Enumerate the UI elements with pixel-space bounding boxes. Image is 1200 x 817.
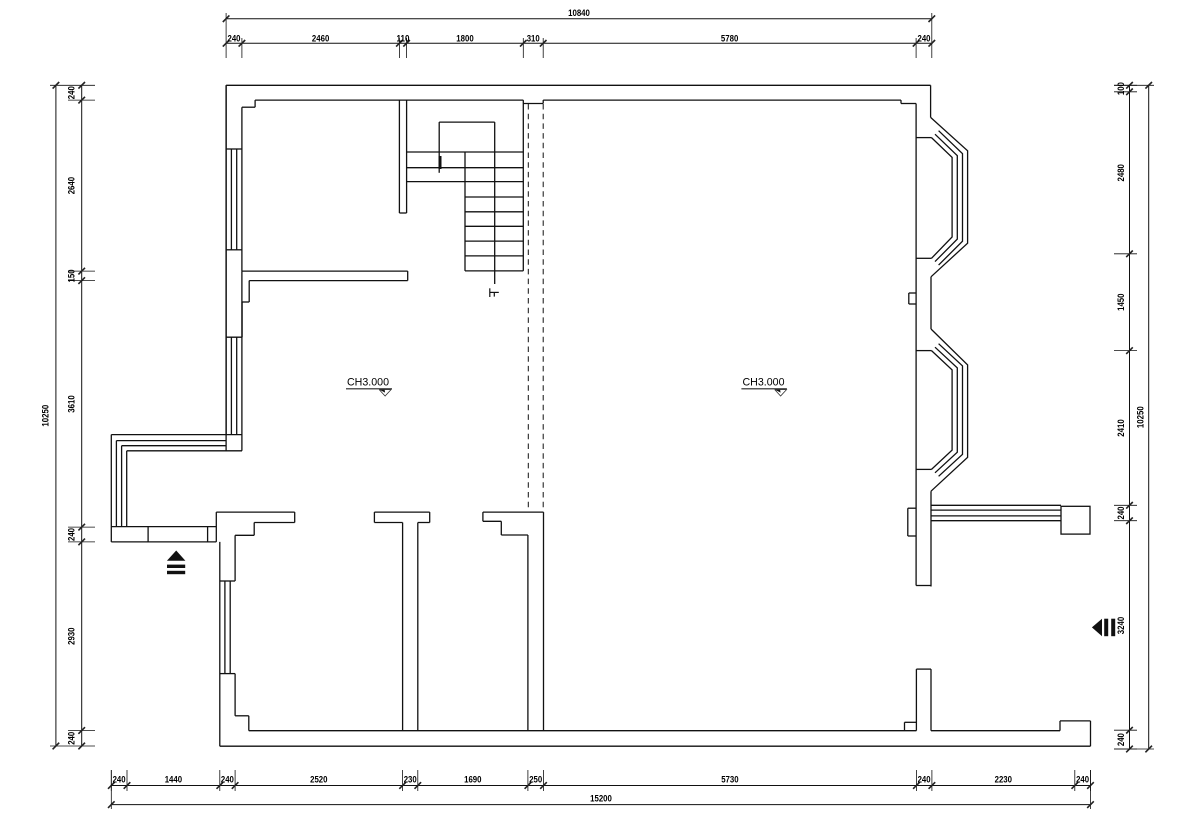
svg-text:240: 240 <box>67 528 78 541</box>
svg-text:CH3.000: CH3.000 <box>347 377 389 389</box>
svg-text:240: 240 <box>1076 774 1089 785</box>
svg-text:2520: 2520 <box>310 774 327 785</box>
svg-text:230: 230 <box>404 774 417 785</box>
svg-text:150: 150 <box>67 269 78 282</box>
svg-text:240: 240 <box>918 34 931 45</box>
svg-text:310: 310 <box>527 34 540 45</box>
svg-text:250: 250 <box>529 774 542 785</box>
svg-text:240: 240 <box>228 34 241 45</box>
svg-text:1440: 1440 <box>165 774 182 785</box>
svg-text:2640: 2640 <box>67 177 78 194</box>
svg-text:10250: 10250 <box>1136 406 1147 428</box>
svg-text:240: 240 <box>918 774 931 785</box>
svg-text:3240: 3240 <box>1116 617 1127 634</box>
svg-text:3610: 3610 <box>67 395 78 412</box>
svg-text:10250: 10250 <box>41 405 52 427</box>
svg-text:2410: 2410 <box>1116 419 1127 436</box>
svg-text:5780: 5780 <box>721 34 738 45</box>
svg-text:2460: 2460 <box>312 34 329 45</box>
svg-text:240: 240 <box>113 774 126 785</box>
svg-text:2930: 2930 <box>67 628 78 645</box>
svg-text:100: 100 <box>1116 82 1127 95</box>
svg-text:5730: 5730 <box>721 774 738 785</box>
svg-text:240: 240 <box>67 86 78 99</box>
svg-text:240: 240 <box>1116 507 1127 520</box>
svg-text:240: 240 <box>67 732 78 745</box>
svg-text:CH3.000: CH3.000 <box>743 377 785 389</box>
svg-text:10840: 10840 <box>568 8 590 19</box>
svg-text:240: 240 <box>221 774 234 785</box>
svg-text:110: 110 <box>397 34 410 45</box>
svg-text:2230: 2230 <box>995 774 1012 785</box>
svg-text:1800: 1800 <box>456 34 473 45</box>
svg-text:15200: 15200 <box>590 794 612 805</box>
svg-text:1690: 1690 <box>464 774 481 785</box>
svg-text:1450: 1450 <box>1116 293 1127 310</box>
svg-text:2480: 2480 <box>1116 164 1127 181</box>
svg-text:240: 240 <box>1116 733 1127 746</box>
